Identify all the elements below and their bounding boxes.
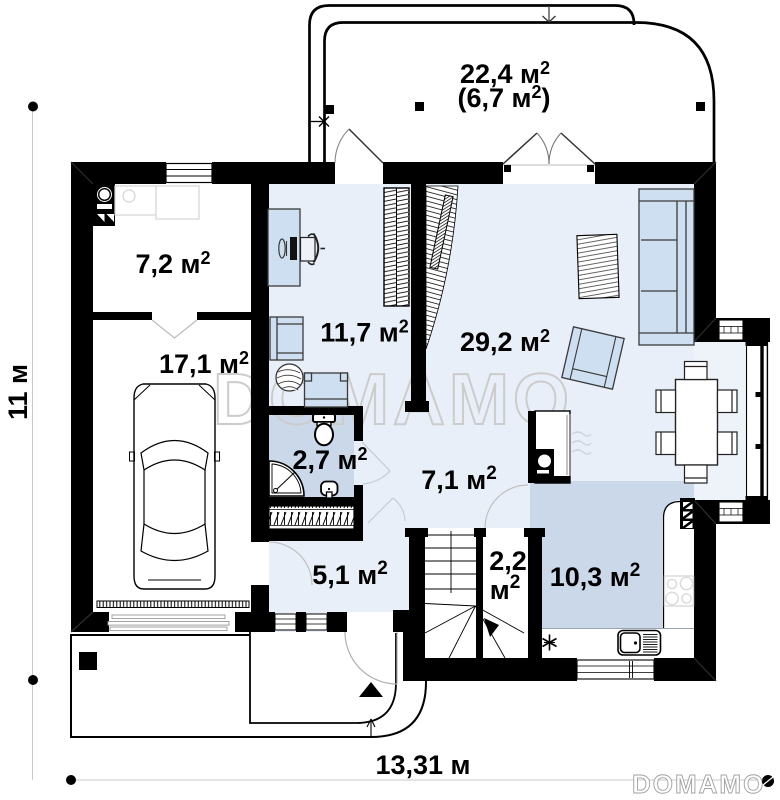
svg-text:7,1 м2: 7,1 м2 (421, 463, 497, 495)
svg-text:2,7 м2: 2,7 м2 (292, 444, 367, 475)
svg-text:13,31 м: 13,31 м (375, 750, 470, 780)
svg-text:29,2 м2: 29,2 м2 (460, 326, 550, 357)
svg-text:(6,7 м2): (6,7 м2) (457, 82, 550, 113)
svg-text:11,7 м2: 11,7 м2 (320, 317, 409, 348)
svg-text:17,1 м2: 17,1 м2 (159, 348, 249, 379)
svg-text:7,2 м2: 7,2 м2 (135, 248, 210, 279)
svg-text:2,2: 2,2 (489, 546, 527, 576)
svg-text:DOMAMO: DOMAMO (632, 769, 765, 799)
svg-text:10,3 м2: 10,3 м2 (550, 560, 641, 592)
svg-text:11 м: 11 м (3, 364, 33, 420)
svg-text:5,1 м2: 5,1 м2 (312, 558, 388, 590)
